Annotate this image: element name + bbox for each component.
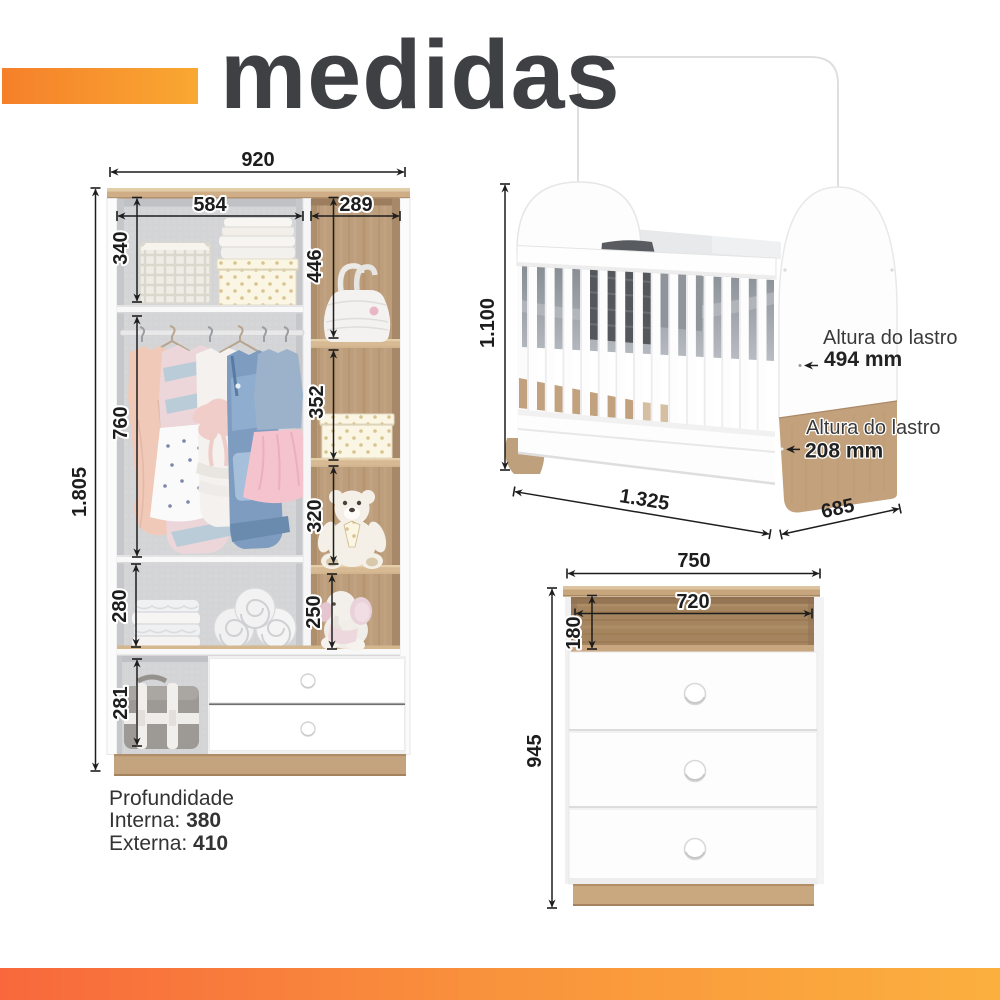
svg-text:281: 281 bbox=[110, 686, 132, 719]
svg-text:Externa: 410: Externa: 410 bbox=[109, 832, 228, 855]
svg-text:Altura do lastro: Altura do lastro bbox=[806, 417, 941, 439]
svg-text:446: 446 bbox=[304, 249, 326, 282]
svg-text:Interna: 380: Interna: 380 bbox=[109, 809, 221, 832]
svg-text:Profundidade: Profundidade bbox=[109, 787, 234, 810]
svg-text:1.805: 1.805 bbox=[69, 467, 91, 517]
svg-text:180: 180 bbox=[563, 616, 585, 649]
svg-text:760: 760 bbox=[110, 406, 132, 439]
svg-text:340: 340 bbox=[110, 231, 132, 264]
svg-text:208 mm: 208 mm bbox=[805, 440, 883, 463]
svg-text:945: 945 bbox=[524, 734, 546, 767]
svg-text:920: 920 bbox=[241, 149, 274, 171]
svg-text:494 mm: 494 mm bbox=[824, 348, 902, 371]
svg-text:584: 584 bbox=[193, 194, 227, 216]
svg-text:289: 289 bbox=[339, 194, 372, 216]
svg-text:320: 320 bbox=[304, 499, 326, 532]
svg-text:Altura do lastro: Altura do lastro bbox=[823, 327, 958, 349]
svg-text:1.100: 1.100 bbox=[477, 298, 499, 348]
svg-text:750: 750 bbox=[677, 550, 710, 572]
svg-text:280: 280 bbox=[109, 589, 131, 622]
svg-text:medidas: medidas bbox=[220, 20, 621, 129]
svg-text:250: 250 bbox=[303, 595, 325, 628]
svg-text:352: 352 bbox=[306, 385, 328, 418]
svg-text:720: 720 bbox=[676, 591, 709, 613]
